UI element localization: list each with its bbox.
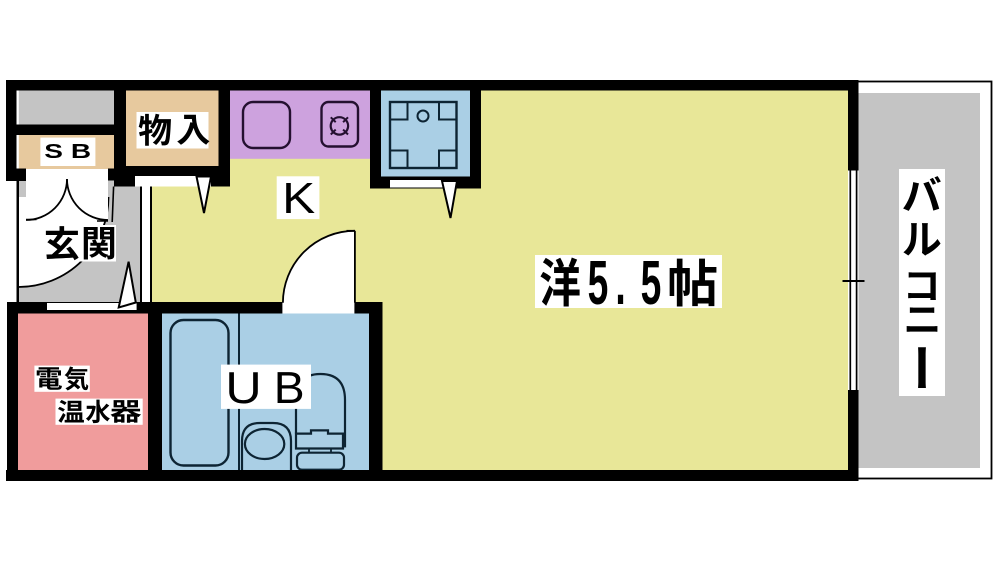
svg-text:S: S	[44, 141, 63, 163]
svg-text:5: 5	[641, 248, 662, 317]
svg-text:U: U	[225, 364, 261, 414]
svg-text:B: B	[71, 141, 91, 163]
svg-text:B: B	[274, 363, 305, 413]
svg-text:.: .	[615, 248, 625, 317]
svg-text:K: K	[282, 174, 315, 222]
svg-text:5: 5	[588, 248, 609, 317]
